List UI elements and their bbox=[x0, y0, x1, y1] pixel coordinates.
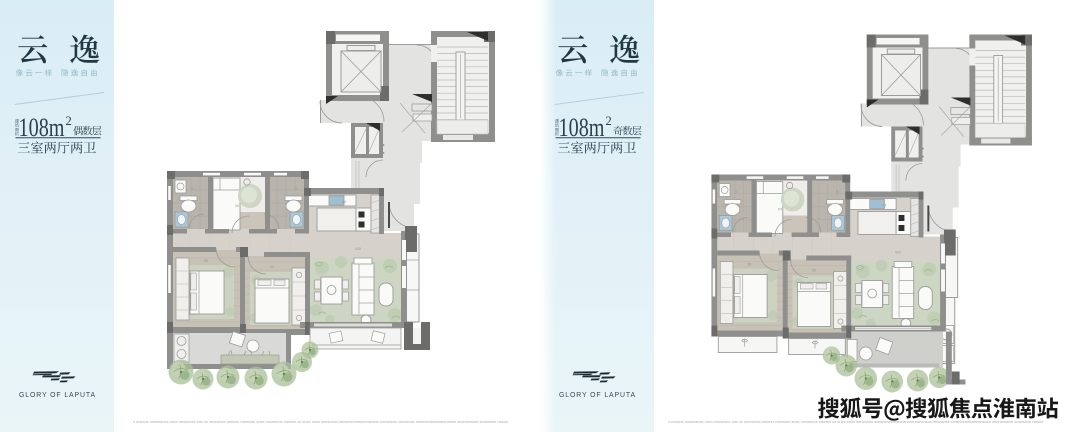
svg-text:x nnxxnx xxnxnxnxx nxxx xnxxnx: x nnxxnx xxnxnxnxx nxxx xnxxnxxx xnx xx … bbox=[133, 419, 508, 424]
svg-text:GLORY OF LAPUTA: GLORY OF LAPUTA bbox=[19, 392, 96, 399]
svg-text:XXX: XXX bbox=[895, 250, 902, 254]
svg-text:x nnxxnx xxnxnxnxx nxxx xnxxnx: x nnxxnx xxnxnxnxx nxxx xnxxnxxx xnx xx … bbox=[668, 419, 1043, 424]
svg-text:GLORY OF LAPUTA: GLORY OF LAPUTA bbox=[559, 392, 636, 399]
svg-text:XXX: XXX bbox=[355, 247, 362, 251]
svg-text:2: 2 bbox=[606, 114, 612, 128]
svg-text:2: 2 bbox=[66, 114, 72, 128]
